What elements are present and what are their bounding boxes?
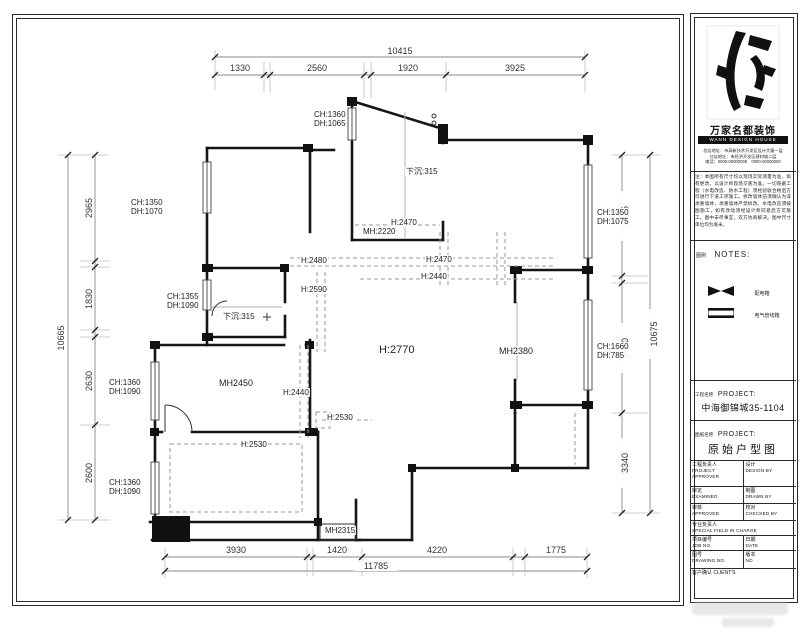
project-name: 中海御锦城35-1104 <box>690 401 796 414</box>
cell-cn: 客户确认 <box>692 570 712 576</box>
plan-sheet-inner-frame <box>16 18 680 602</box>
plan-label-height: MH2450 <box>218 378 254 388</box>
dim-bottom-seg2: 1420 <box>315 545 359 555</box>
plan-label-sunken: 下沉:315 <box>222 312 256 321</box>
cell-en: DRAWN BY <box>746 494 795 500</box>
table-row: 项目编号JOB NO. 日期DATE <box>690 535 796 551</box>
dim-bottom-seg1: 3930 <box>214 545 258 555</box>
company-address: 总店地址：市高新技术开发区设计大厦一层 分店地址：市经济开发区建材城二层 电话：… <box>696 148 790 165</box>
divider <box>690 420 796 421</box>
dim-left-total: 10665 <box>56 313 66 363</box>
drawing-sheet: { "dims": { "top": {"total":"10415","seg… <box>0 0 800 640</box>
divider <box>690 240 796 241</box>
plan-sheet-frame <box>12 14 684 606</box>
legend-title-cn: 图例 <box>696 253 706 259</box>
plan-label-height: MH2315 <box>324 526 356 535</box>
plan-label-height: H:2530 <box>240 440 268 449</box>
title-block: 万家名都装饰 WANN DESIGN HOUSE 总店地址：市高新技术开发区设计… <box>690 13 796 601</box>
client-confirm-label: 客户确认 CLIENT'S <box>692 570 794 576</box>
plan-label-height: H:2470 <box>425 255 453 264</box>
plan-label-height: MH2380 <box>498 346 534 356</box>
dim-left-seg4: 2600 <box>84 448 94 498</box>
distribution-box-icon <box>708 286 734 296</box>
watermark <box>692 602 788 615</box>
cell-en: EXAMINED <box>692 494 741 500</box>
plan-label-height: H:2440 <box>420 272 448 281</box>
dim-top-seg4: 3925 <box>493 63 537 73</box>
table-row: 图号DRAWING NO. 版本NO <box>690 550 796 569</box>
dim-bottom-seg3: 4220 <box>415 545 459 555</box>
divider <box>690 380 796 381</box>
plan-label-height: MH:2220 <box>362 227 396 236</box>
project-label-cn: 工程名称 <box>695 392 713 397</box>
cell-en: CLIENT'S <box>713 570 735 576</box>
plan-label-ch-dh: CH:1355 DH:1090 <box>166 292 200 310</box>
dim-right-total: 10675 <box>649 309 659 359</box>
table-row: 审定EXAMINED 制图DRAWN BY <box>690 486 796 504</box>
dim-top-seg3: 1920 <box>386 63 430 73</box>
cell-en: NO <box>746 558 795 564</box>
company-name: 万家名都装饰 <box>690 122 796 137</box>
table-row-client: 客户确认 CLIENT'S <box>690 568 796 597</box>
legend-item: 配电箱 <box>708 282 796 294</box>
electric-conduit-box-icon <box>708 308 734 318</box>
cell-en: DESIGN BY <box>746 468 795 474</box>
cell-en: CHECKED BY <box>746 511 795 517</box>
cell-en: JOB NO. <box>692 543 741 549</box>
plan-label-main-height: H:2770 <box>378 344 415 356</box>
plan-label-ch-dh: CH:1360 DH:1065 <box>313 110 347 128</box>
drawing-label-en: PROJECT: <box>718 431 756 438</box>
dim-bottom-total: 11785 <box>354 561 398 571</box>
dim-bottom-seg4: 1775 <box>534 545 578 555</box>
legend-item-label: 电气管线箱 <box>754 313 779 319</box>
plan-label-height: H:2530 <box>326 413 354 422</box>
general-notes: 注：本图所有尺寸均以现场实际测量为准，如有更改，以设计师现场交底为准。一切隐蔽工… <box>695 174 791 228</box>
drawing-row-header: 图纸名称 PROJECT: <box>695 423 796 441</box>
table-row: 专业负责人SPECIAL FIELD IN CHARGE <box>690 520 796 536</box>
project-label-en: PROJECT: <box>718 391 756 398</box>
plan-label-ch-dh: CH:1360 DH:1090 <box>108 378 142 396</box>
plan-label-height: H:2480 <box>300 256 328 265</box>
legend-item-label: 配电箱 <box>754 291 769 297</box>
plan-label-height: H:2440 <box>282 388 310 397</box>
drawing-name: 原始户型图 <box>690 441 796 457</box>
cell-en: SPECIAL FIELD IN CHARGE <box>692 528 794 534</box>
company-name-en-bar: WANN DESIGN HOUSE <box>698 136 788 144</box>
dim-right-seg3: 3340 <box>620 438 630 488</box>
table-row: 审核APPROVED 校对CHECKED BY <box>690 503 796 521</box>
plan-label-ch-dh: CH:1660 DH:785 <box>596 342 630 360</box>
legend-title-en: NOTES: <box>714 250 750 259</box>
plan-label-sunken: 下沉:315 <box>405 167 439 176</box>
plan-label-height: H:2470 <box>390 218 418 227</box>
dim-left-seg1: 2965 <box>84 183 94 233</box>
plan-label-ch-dh: CH:1360 DH:1090 <box>108 478 142 496</box>
project-row-header: 工程名称 PROJECT: <box>695 383 796 401</box>
logo-calligraphy-icon <box>706 25 780 120</box>
legend-item: 电气管线箱 <box>708 304 796 316</box>
cell-en: PROJECT APPROVER <box>692 468 741 479</box>
drawing-label-cn: 图纸名称 <box>695 432 713 437</box>
dim-top-total: 10415 <box>378 46 422 56</box>
plan-label-ch-dh: CH:1350 DH:1070 <box>130 198 164 216</box>
dim-top-seg2: 2560 <box>295 63 339 73</box>
legend-header: 图例 NOTES: <box>696 244 796 262</box>
company-logo <box>706 25 780 120</box>
cell-en: APPROVED <box>692 511 741 517</box>
dim-left-seg2: 1830 <box>84 274 94 324</box>
plan-label-height: H:2590 <box>300 285 328 294</box>
watermark <box>722 618 774 627</box>
cell-en: DATE <box>746 543 795 549</box>
dim-top-seg1: 1330 <box>218 63 262 73</box>
cell-en: DRAWING NO. <box>692 558 741 564</box>
table-row: 工程负责人PROJECT APPROVER 设计DESIGN BY <box>690 460 796 487</box>
dim-left-seg3: 2630 <box>84 356 94 406</box>
divider <box>690 171 796 172</box>
plan-label-ch-dh: CH:1350 DH:1075 <box>596 208 630 226</box>
